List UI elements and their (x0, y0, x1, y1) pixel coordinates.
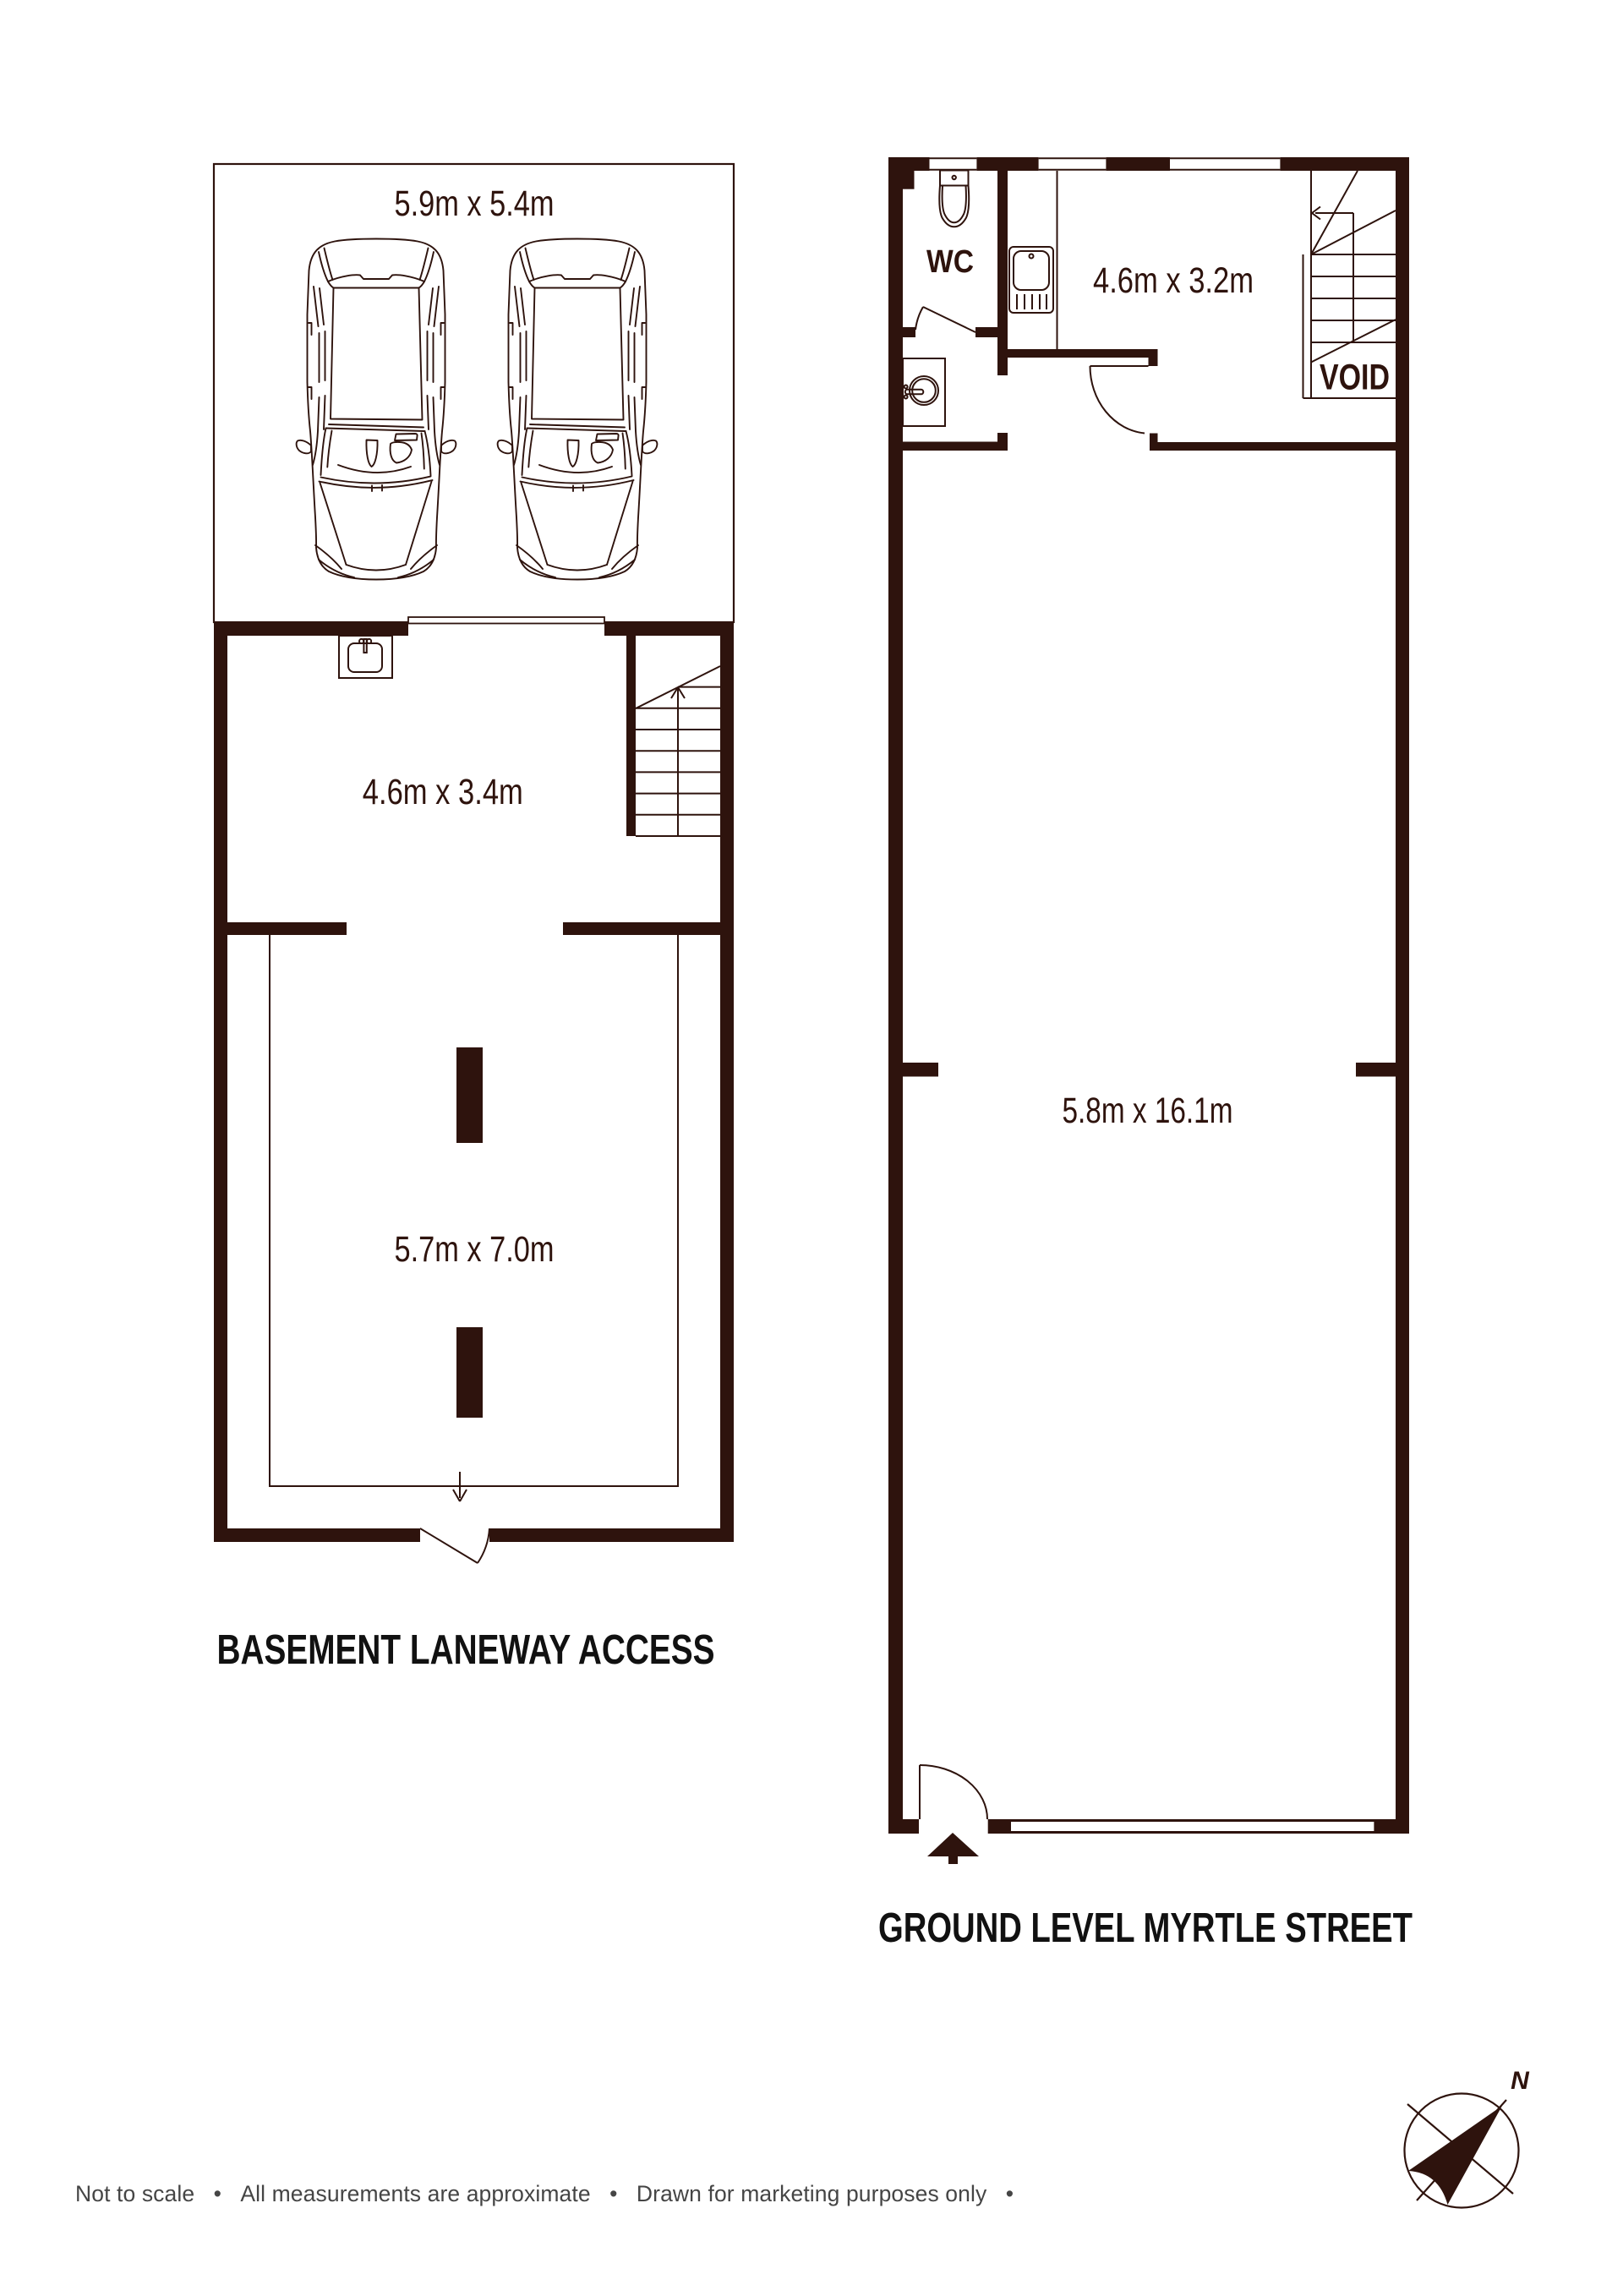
svg-text:5.7m x 7.0m: 5.7m x 7.0m (395, 1229, 555, 1270)
svg-text:BASEMENT LANEWAY ACCESS: BASEMENT LANEWAY ACCESS (217, 1626, 715, 1673)
svg-text:WC: WC (926, 244, 974, 280)
svg-text:VOID: VOID (1320, 358, 1390, 398)
svg-text:Not to scale • All measure: Not to scale • All measurements are appr… (75, 2181, 1014, 2206)
svg-text:4.6m x 3.4m: 4.6m x 3.4m (363, 772, 523, 812)
svg-text:N: N (1511, 2067, 1530, 2095)
svg-text:5.8m x 16.1m: 5.8m x 16.1m (1063, 1091, 1233, 1131)
svg-text:GROUND LEVEL MYRTLE STREET: GROUND LEVEL MYRTLE STREET (878, 1905, 1413, 1951)
svg-text:4.6m x 3.2m: 4.6m x 3.2m (1093, 260, 1254, 301)
svg-text:5.9m x 5.4m: 5.9m x 5.4m (395, 183, 555, 224)
